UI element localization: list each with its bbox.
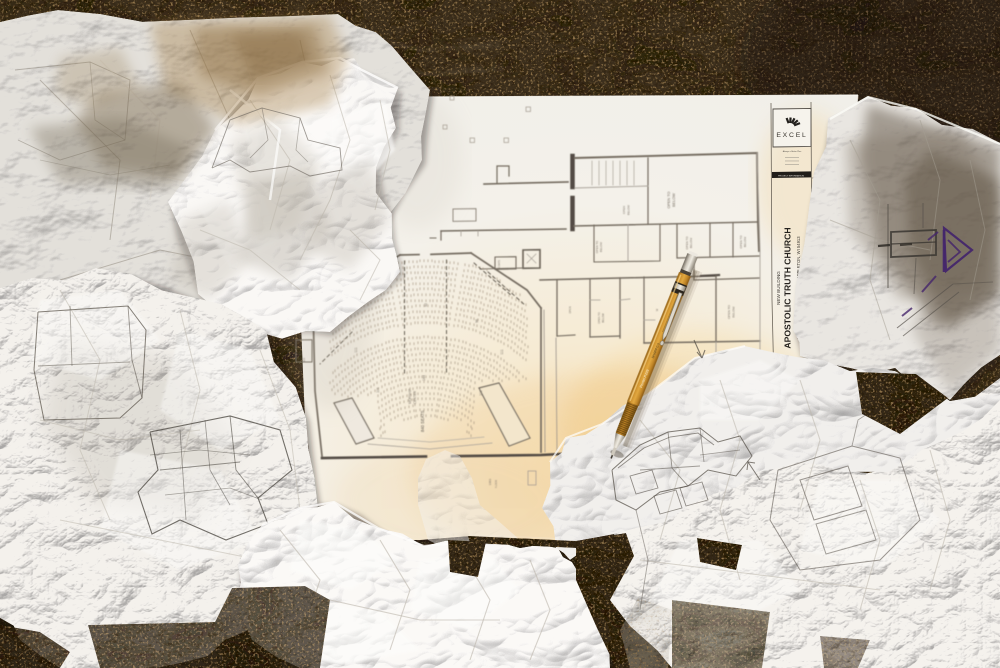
svg-text:BELOW: BELOW <box>601 313 605 323</box>
svg-text:101: 101 <box>376 387 380 393</box>
svg-text:Always a Better Plan: Always a Better Plan <box>783 150 801 153</box>
svg-text:BELOW: BELOW <box>689 238 693 249</box>
svg-text:OPEN: OPEN <box>622 206 626 214</box>
svg-text:1003: 1003 <box>488 478 492 485</box>
svg-text:APOSTOLIC TRUTH CHURCH: APOSTOLIC TRUTH CHURCH <box>783 227 793 348</box>
svg-text:OPEN TO: OPEN TO <box>597 312 601 324</box>
svg-text:OPEN: OPEN <box>569 306 572 313</box>
svg-text:FLOOR: FLOOR <box>495 480 498 489</box>
svg-text:BELOW: BELOW <box>743 237 747 248</box>
svg-text:101: 101 <box>479 390 483 396</box>
svg-text:144: 144 <box>422 375 426 381</box>
svg-text:CENTER: CENTER <box>413 390 417 404</box>
svg-text:NEW BUILDING: NEW BUILDING <box>776 271 781 305</box>
svg-text:840 SEATS: 840 SEATS <box>420 410 425 432</box>
svg-text:PROJECT INFORMATION: PROJECT INFORMATION <box>778 175 804 178</box>
svg-text:OPEN TO: OPEN TO <box>667 191 671 208</box>
svg-text:BELOW: BELOW <box>731 306 735 317</box>
svg-text:WORSHIP: WORSHIP <box>408 389 412 404</box>
svg-text:92: 92 <box>424 303 428 307</box>
svg-text:BELOW: BELOW <box>672 193 676 207</box>
svg-text:111: 111 <box>500 349 504 354</box>
svg-text:COATS: COATS <box>498 260 501 268</box>
svg-text:BELOW: BELOW <box>627 205 631 215</box>
svg-text:BELOW: BELOW <box>599 242 603 252</box>
svg-text:EXCEL: EXCEL <box>776 132 807 139</box>
svg-text:96: 96 <box>475 319 479 323</box>
